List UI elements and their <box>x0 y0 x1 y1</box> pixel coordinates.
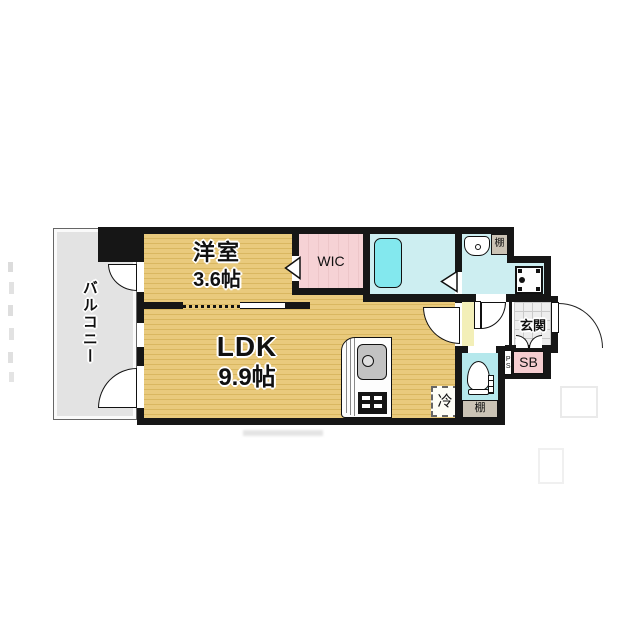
wall <box>544 256 551 302</box>
scan-artifact <box>538 448 564 484</box>
balcony-door-opening <box>137 262 144 292</box>
balcony-door-opening <box>137 366 144 408</box>
scan-artifact <box>560 386 598 418</box>
washing-machine-pan-icon <box>515 266 543 294</box>
toilet-icon <box>465 358 497 398</box>
ldk-name: LDK <box>187 332 307 362</box>
ldk-size: 9.9帖 <box>187 364 307 392</box>
wall <box>285 302 310 309</box>
shoe-box-label: SB <box>513 351 544 374</box>
watermark-smudge <box>243 430 323 436</box>
scan-artifact <box>8 305 13 316</box>
scan-artifact <box>9 282 14 294</box>
refrigerator-label: 冷 <box>431 386 459 417</box>
front-door-arc <box>559 303 603 348</box>
shelf-toilet-label: 棚 <box>475 403 486 415</box>
door-leaf-washroom <box>474 301 481 329</box>
floor-plan: バルコニー 棚 冷 棚 <box>0 0 640 640</box>
pipe-space-label: PS <box>504 350 512 375</box>
pillar <box>98 227 138 262</box>
open-wall-dotted <box>183 305 240 308</box>
window-opening <box>137 323 144 347</box>
toilet-door-opening <box>468 346 496 353</box>
door-triangle-bath <box>440 270 458 293</box>
stove-icon <box>358 392 387 414</box>
bathtub-icon <box>374 238 402 288</box>
sliding-opening <box>240 302 285 309</box>
yoshitsu-size: 3.6帖 <box>157 268 277 292</box>
wic-label: WIC <box>299 250 363 272</box>
shelf-washroom-label: 棚 <box>495 239 505 250</box>
wall <box>363 227 370 302</box>
wall <box>137 302 183 309</box>
scan-artifact <box>9 372 14 382</box>
yoshitsu-name: 洋室 <box>157 240 277 266</box>
washbasin-icon <box>464 236 490 256</box>
kitchen-sink-icon <box>357 344 387 380</box>
wall <box>292 288 370 295</box>
wall <box>137 418 505 425</box>
scan-artifact <box>8 262 13 272</box>
genkan-label: 玄関 <box>512 317 554 335</box>
balcony-label: バルコニー <box>78 262 100 382</box>
hallway-step <box>462 302 474 346</box>
shelf-toilet: 棚 <box>462 400 498 418</box>
shelf-washroom: 棚 <box>491 234 508 255</box>
scan-artifact <box>8 352 13 363</box>
scan-artifact <box>9 328 14 340</box>
